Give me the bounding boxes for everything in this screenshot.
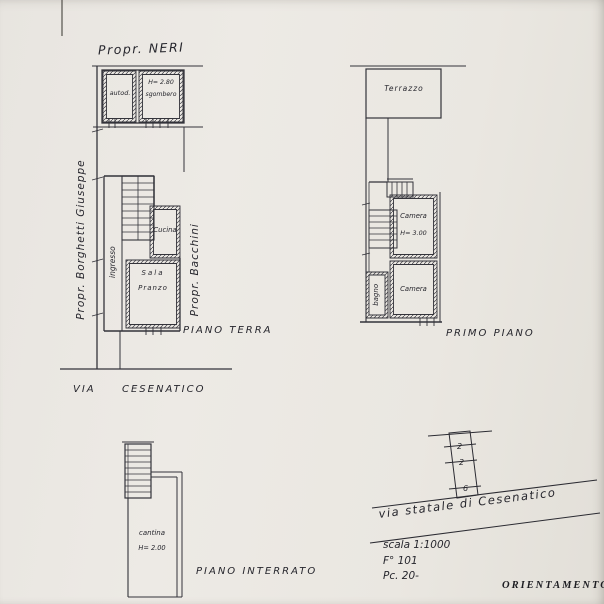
sheet-number-label: F° 101: [383, 556, 418, 568]
parcel-mark-2: 2: [459, 458, 464, 467]
room-label-ingresso: ingresso: [109, 232, 117, 292]
room-label-sala: Sala: [130, 270, 176, 278]
scanned-floor-plan-sheet: 2 2 6 Propr. NERI Propr. Borghetti Giuse…: [0, 0, 604, 604]
street-label-via: VIA: [73, 384, 96, 395]
room-label-pranzo: Pranzo: [130, 285, 176, 293]
caption-orientamento: ORIENTAMENTO: [502, 580, 604, 591]
owner-label-bacchini: Propr. Bacchini: [190, 215, 202, 325]
room-label-cantina: cantina: [130, 530, 174, 538]
owner-label-neri: Propr. NERI: [98, 40, 185, 57]
room-label-annex-height: H= 2.80: [141, 80, 181, 87]
room-label-cantina-height: H= 2.00: [130, 545, 174, 552]
parcel-mark-3: 6: [463, 484, 468, 493]
scale-label: scala 1:1000: [383, 540, 450, 552]
caption-primo-piano: PRIMO PIANO: [446, 328, 535, 339]
caption-piano-terra: PIANO TERRA: [183, 325, 273, 336]
room-label-camera-1-height: H= 3.00: [390, 230, 437, 237]
basement-plan: [122, 442, 182, 597]
room-label-camera-2: Camera: [390, 286, 437, 293]
street-label-cesenatico: CESENATICO: [122, 384, 205, 395]
parcel-number-label: Pc. 20-: [383, 571, 419, 583]
room-label-bagno: bagno: [373, 270, 381, 320]
owner-label-borghetti: Propr. Borghetti Giuseppe: [76, 160, 88, 320]
orientation-sketch: 2 2 6: [370, 431, 600, 543]
room-label-sgombero: sgombero: [139, 92, 183, 99]
caption-piano-interrato: PIANO INTERRATO: [196, 566, 317, 577]
parcel-mark-1: 2: [457, 442, 462, 451]
room-label-terrazzo: Terrazzo: [374, 85, 434, 93]
room-label-cucina: Cucina: [147, 227, 183, 234]
plan-linework: 2 2 6: [0, 0, 604, 604]
room-label-annex: autod.: [105, 90, 135, 97]
room-label-camera-1: Camera: [390, 213, 437, 220]
